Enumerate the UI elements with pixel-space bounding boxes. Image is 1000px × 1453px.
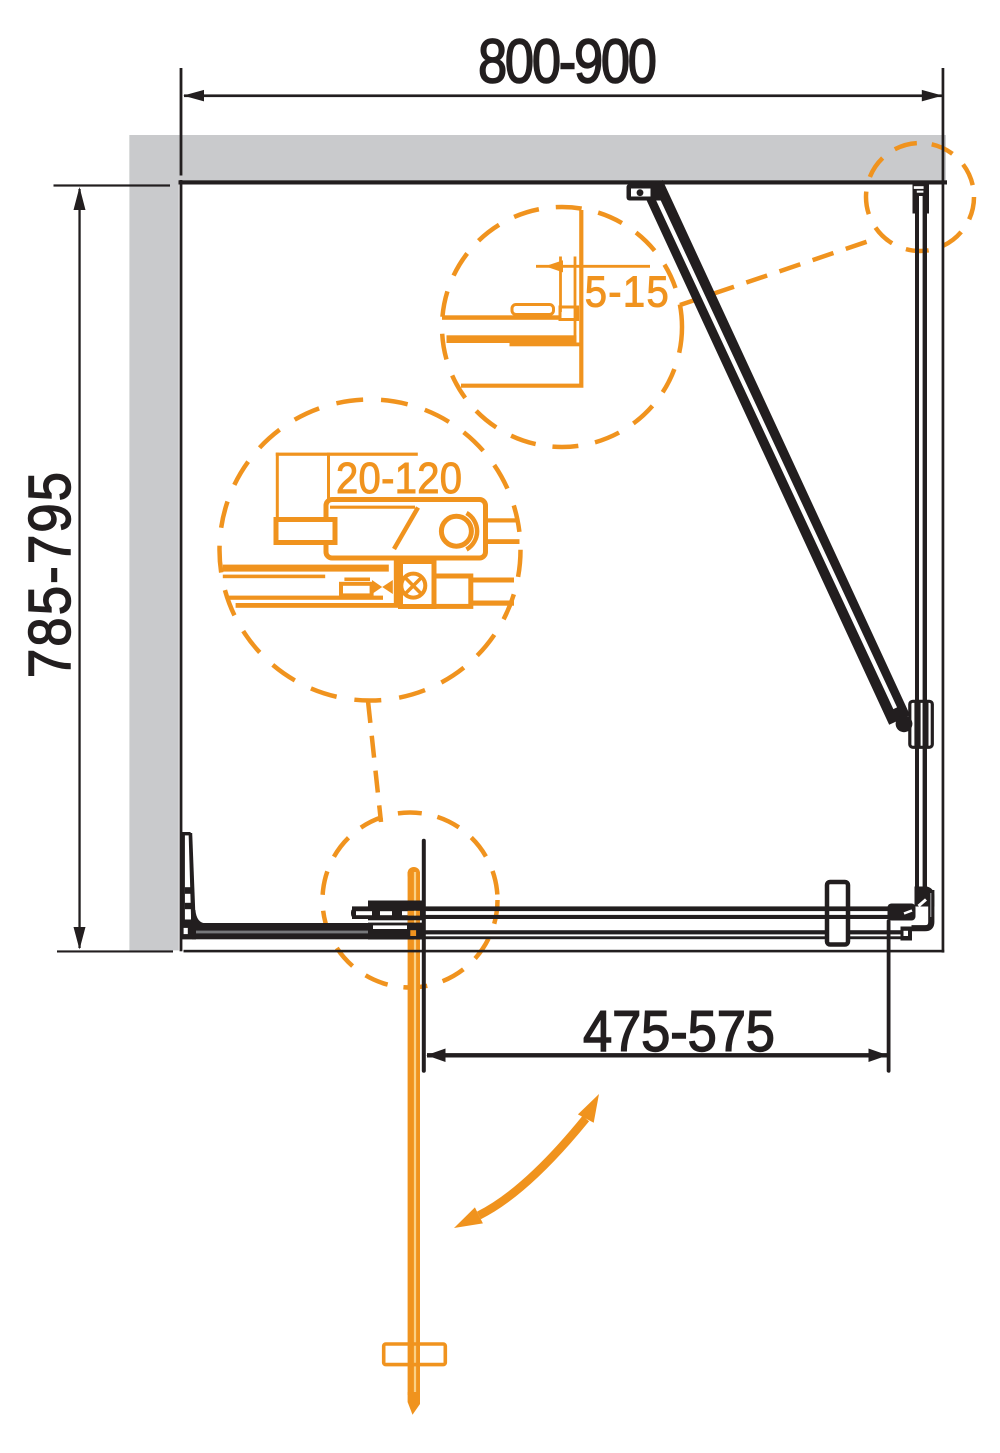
- svg-text:800-900: 800-900: [478, 27, 657, 96]
- svg-text:5-15: 5-15: [585, 267, 669, 316]
- svg-text:20-120: 20-120: [336, 453, 462, 502]
- svg-text:475-575: 475-575: [583, 999, 775, 1064]
